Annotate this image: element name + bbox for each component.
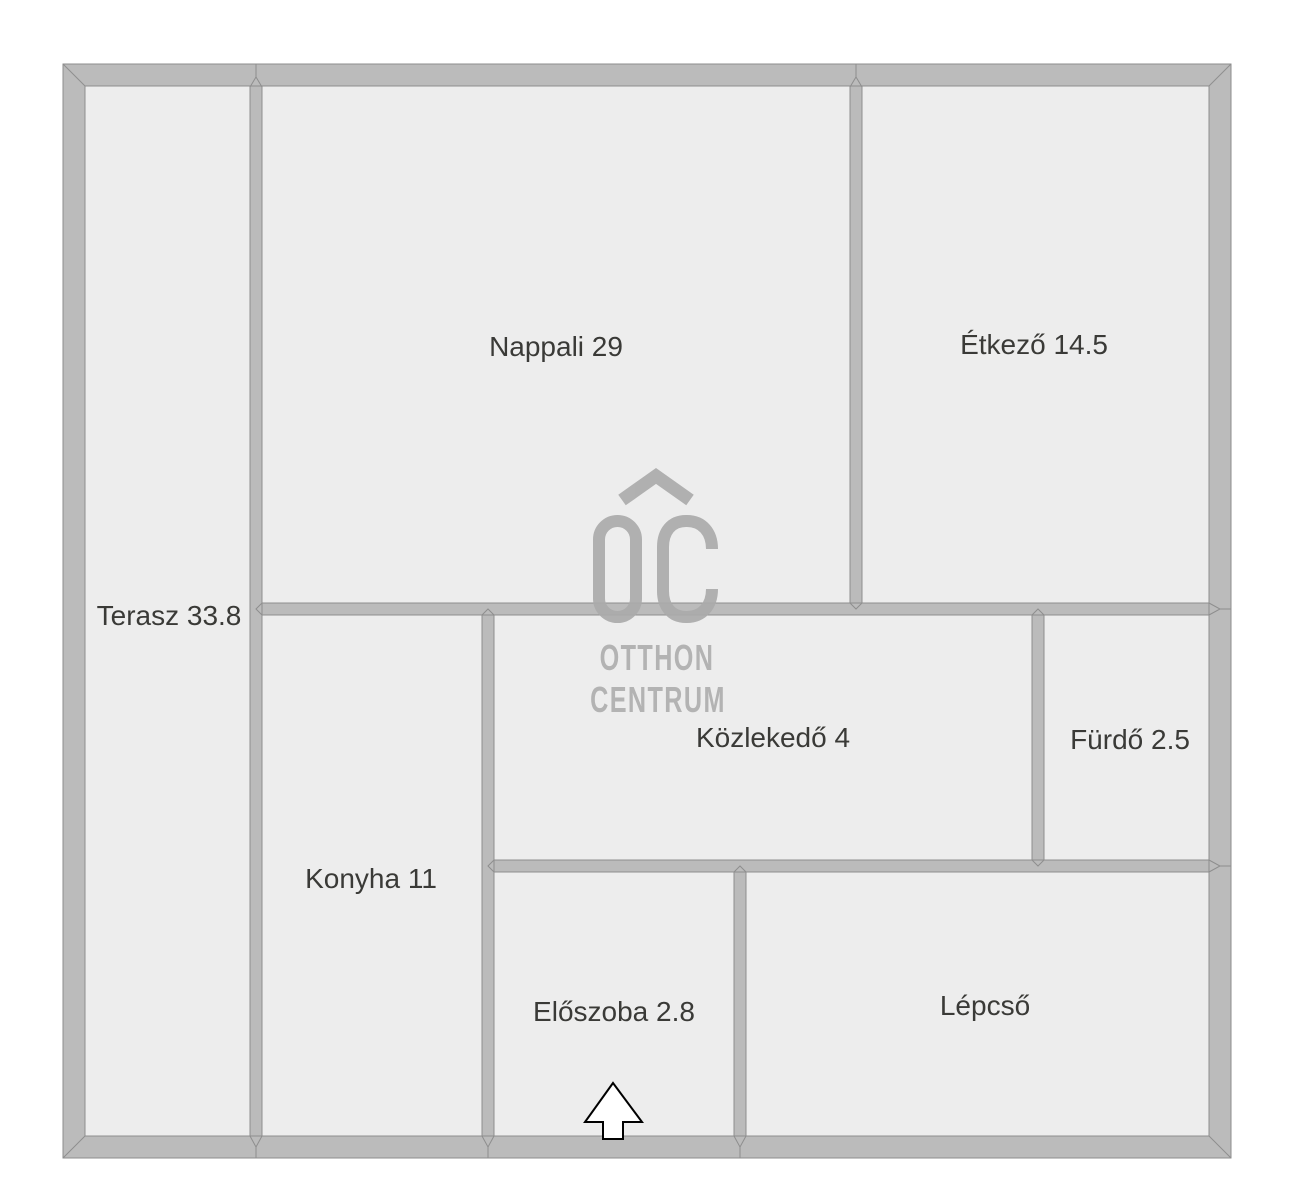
room-label-konyha: Konyha 11 [305, 863, 437, 895]
wall-furdo-left [1032, 615, 1044, 860]
wall-konyha-right [482, 615, 494, 1136]
room-label-etkezo: Étkező 14.5 [960, 329, 1108, 361]
wall-lower-horizontal [494, 860, 1209, 872]
logo-word-otthon: OTTHON [600, 640, 715, 676]
room-label-nappali: Nappali 29 [489, 331, 623, 363]
room-label-terasz: Terasz 33.8 [97, 600, 242, 632]
room-label-lepcso: Lépcső [940, 990, 1030, 1022]
wall-nappali-etkezo [850, 86, 862, 603]
wall-eloszoba-lepcso [734, 872, 746, 1136]
logo-word-centrum: CENTRUM [590, 682, 726, 718]
room-label-furdo: Fürdő 2.5 [1070, 724, 1190, 756]
wall-mid-horizontal [262, 603, 1209, 615]
wall-terasz-right [250, 86, 262, 1136]
floorplan-canvas: OTTHON CENTRUM Terasz 33.8 Nappali 29 Ét… [0, 0, 1314, 1184]
room-label-kozlekedo: Közlekedő 4 [696, 722, 850, 754]
room-label-eloszoba: Előszoba 2.8 [533, 996, 695, 1028]
